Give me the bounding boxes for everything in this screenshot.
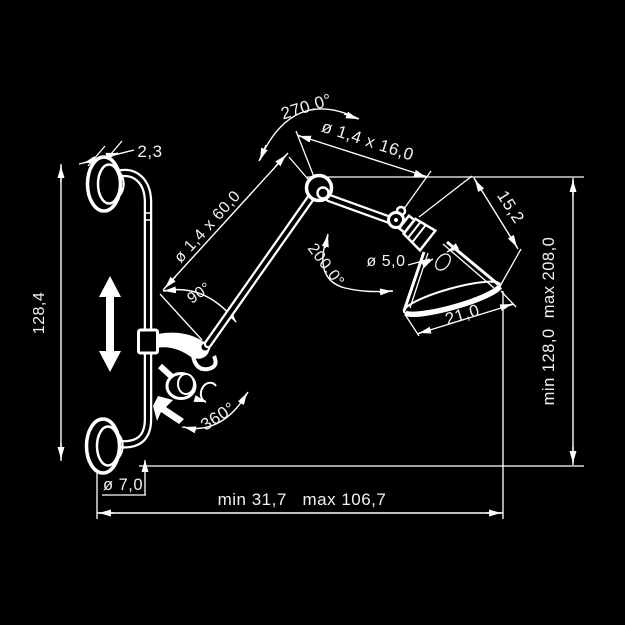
ext-line (406, 316, 419, 336)
wall-pole (115, 173, 148, 444)
rotation-arrow-icon (201, 383, 216, 402)
head-fork-pin (394, 218, 398, 222)
label-arm-angle: 90° (184, 279, 214, 307)
wall-pole-core (115, 173, 148, 444)
label-socket-diameter: ø 5,0 (367, 253, 406, 270)
label-base-rotation: 360° (197, 398, 239, 434)
clamp-sleeve (139, 330, 158, 353)
shade-side (447, 242, 499, 285)
label-disc-thickness: 2,3 (137, 142, 162, 161)
arrow-icon (299, 136, 310, 139)
label-lower-arm: ø 1,4 x 60,0 (171, 188, 244, 267)
ext-line (419, 176, 472, 217)
arrow-icon (419, 330, 431, 333)
arrow-icon (511, 237, 517, 247)
arrow-icon (500, 304, 512, 308)
adjust-knob-face (178, 374, 194, 394)
bulb (433, 251, 454, 273)
arrow-icon (379, 291, 392, 292)
dim-line-lower-arm (163, 153, 288, 290)
lamp-dimension-drawing: 2,3 128,4 ø 1,4 x 60,0 90° 270.0° ø 1,4 … (0, 0, 625, 625)
top-wall-mount (88, 157, 125, 211)
label-height-range: min 128,0 max 208,0 (540, 237, 558, 406)
label-head-length: 15,2 (493, 187, 528, 227)
dimension-lines (61, 109, 584, 519)
upper-arm-core (329, 198, 390, 220)
label-reach-range: min 31,7 max 106,7 (218, 490, 387, 509)
lamp-body (87, 157, 503, 473)
arrow-icon (241, 393, 247, 403)
arrow-icon (260, 145, 266, 160)
drawing-canvas: 2,3 128,4 ø 1,4 x 60,0 90° 270.0° ø 1,4 … (0, 0, 625, 625)
bottom-wall-mount (87, 419, 124, 473)
arrow-icon (164, 290, 174, 291)
knob-stem (160, 366, 172, 377)
label-pole-length: 128,4 (31, 292, 48, 335)
arrow-icon (165, 276, 176, 288)
label-tube-diameter: ø 7,0 (103, 476, 143, 494)
vertical-slide-arrow-icon (99, 276, 121, 372)
lamp-head (389, 207, 503, 321)
elbow-hub (318, 188, 329, 199)
arrow-icon (275, 155, 286, 167)
elbow-joint (307, 176, 332, 201)
slide-direction-arrow-icon (153, 396, 184, 424)
label-shade-opening: 21,0 (443, 301, 482, 329)
ext-line (499, 249, 521, 288)
ext-line (296, 131, 316, 182)
arrow-icon (475, 180, 481, 190)
